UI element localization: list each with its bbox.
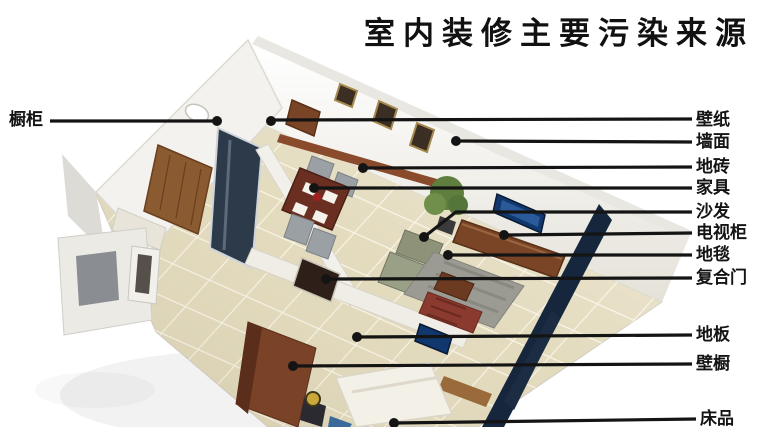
- label-wood-floor: 地板: [696, 326, 730, 344]
- label-composite-door: 复合门: [696, 269, 747, 287]
- plant-foliage: [424, 193, 446, 215]
- apartment-render: [0, 0, 780, 427]
- leader-wallpaper: [272, 119, 692, 120]
- leader-closet: [294, 364, 692, 366]
- leader-dot-tv-cabinet: [499, 230, 509, 240]
- leader-wall-surface: [458, 141, 692, 142]
- glass-partition: [210, 128, 262, 268]
- leader-dot-wood-floor: [352, 332, 362, 342]
- label-closet: 壁橱: [696, 355, 730, 373]
- leader-dot-floor-tile: [358, 163, 368, 173]
- leader-dot-carpet: [443, 250, 453, 260]
- watermark-smudge: [35, 372, 155, 408]
- leader-dot-furniture: [309, 183, 319, 193]
- leader-dot-closet: [288, 361, 298, 371]
- leader-floor-tile: [364, 167, 692, 168]
- label-furniture: 家具: [696, 179, 730, 197]
- label-carpet: 地毯: [696, 246, 730, 264]
- leader-dot-wallpaper: [266, 116, 276, 126]
- leader-wood-floor: [358, 335, 692, 337]
- leader-composite-door: [327, 278, 692, 279]
- leader-tv-cabinet: [505, 233, 692, 235]
- table-flowers: [313, 193, 321, 201]
- artwork: [135, 254, 152, 294]
- kitchen-cabinet-inset: [76, 251, 119, 306]
- label-sofa: 沙发: [696, 203, 730, 221]
- leader-dot-sofa: [419, 232, 429, 242]
- label-bedding: 床品: [700, 410, 734, 427]
- page-title: 室内装修主要污染来源: [364, 8, 754, 53]
- label-cabinet: 橱柜: [9, 111, 43, 129]
- label-floor-tile: 地砖: [696, 158, 730, 176]
- label-wallpaper: 壁纸: [696, 111, 730, 129]
- leader-dot-composite-door: [321, 274, 331, 284]
- leader-dot-wall-surface: [451, 136, 461, 146]
- label-wall-surface: 墙面: [696, 133, 730, 151]
- label-tv-cabinet: 电视柜: [696, 224, 747, 242]
- bedside-lamp: [306, 392, 320, 406]
- leader-dot-cabinet: [212, 116, 222, 126]
- pollution-sources-infographic: 室内装修主要污染来源 橱柜 壁纸 墙面 地砖 家具 沙发 电视柜 地毯 复合门 …: [0, 0, 780, 427]
